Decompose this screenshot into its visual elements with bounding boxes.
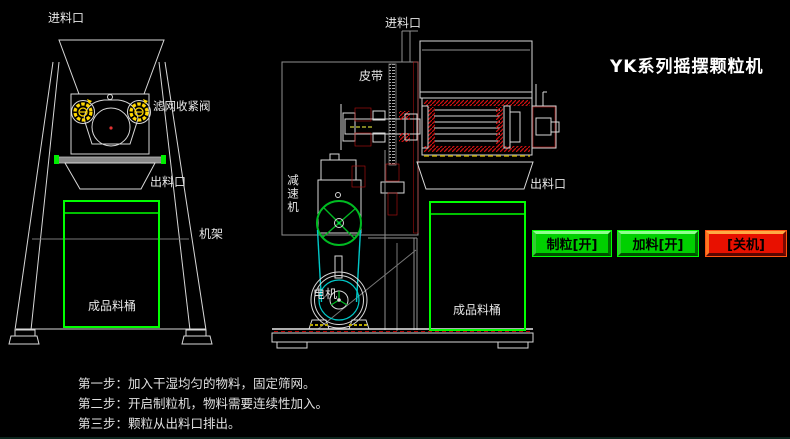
granulating-roller [422, 98, 532, 156]
instruction-step-3: 第三步：颗粒从出料口排出。 [78, 414, 328, 434]
machine-body [282, 62, 418, 235]
left-discharge-chute [65, 163, 155, 189]
filter-valve-knob-right [128, 99, 151, 124]
tray-clip-right [161, 155, 166, 164]
belt-tensioner-parts [381, 164, 404, 215]
label-filter-valve: 滤网收紧阀 [153, 100, 211, 113]
left-frame-feet [9, 330, 212, 344]
main-shaft-assembly [341, 104, 420, 150]
reducer-pulley [317, 201, 361, 245]
feed-on-button[interactable]: 加料[开] [618, 231, 698, 256]
instruction-step-1: 第一步：加入干湿均匀的物料，固定筛网。 [78, 374, 328, 394]
frame-column-hatched [414, 62, 419, 233]
rotor-center-mark [109, 126, 112, 129]
drive-belt-strip [389, 64, 396, 165]
label-motor: 电机 [313, 288, 337, 301]
label-section-outlet: 出料口 [530, 178, 566, 191]
label-left-barrel: 成品料桶 [88, 300, 136, 313]
label-section-inlet: 进料口 [385, 17, 421, 30]
label-belt: 皮带 [359, 70, 383, 83]
granulate-on-button[interactable]: 制粒[开] [533, 231, 611, 256]
right-bearing-housing [532, 84, 559, 148]
left-hopper [59, 40, 164, 94]
label-left-inlet: 进料口 [48, 12, 84, 25]
tray-clip-left [54, 155, 59, 164]
label-reducer: 减速机 [286, 174, 299, 218]
panel-top-pin [108, 95, 113, 100]
label-left-outlet: 出料口 [150, 176, 186, 189]
inlet-duct [402, 31, 418, 62]
power-off-button[interactable]: [关机] [706, 231, 786, 256]
label-section-barrel: 成品料桶 [453, 304, 501, 317]
machine-base [272, 329, 533, 348]
instruction-step-2: 第二步：开启制粒机，物料需要连续性加入。 [78, 394, 328, 414]
section-hopper [420, 41, 532, 98]
section-discharge-chute [417, 162, 533, 189]
rotor-bowl [84, 100, 138, 144]
filter-valve-knob-left [72, 99, 95, 124]
operating-instructions: 第一步：加入干湿均匀的物料，固定筛网。 第二步：开启制粒机，物料需要连续性加入。… [78, 374, 328, 434]
granulator-hmi-screen: 进料口 滤网收紧阀 出料口 机架 成品料桶 进料口 皮带 减速机 电机 出料口 … [0, 0, 790, 439]
sieve-tray [58, 157, 162, 163]
label-frame: 机架 [199, 228, 223, 241]
page-title: YK系列摇摆颗粒机 [610, 52, 763, 77]
